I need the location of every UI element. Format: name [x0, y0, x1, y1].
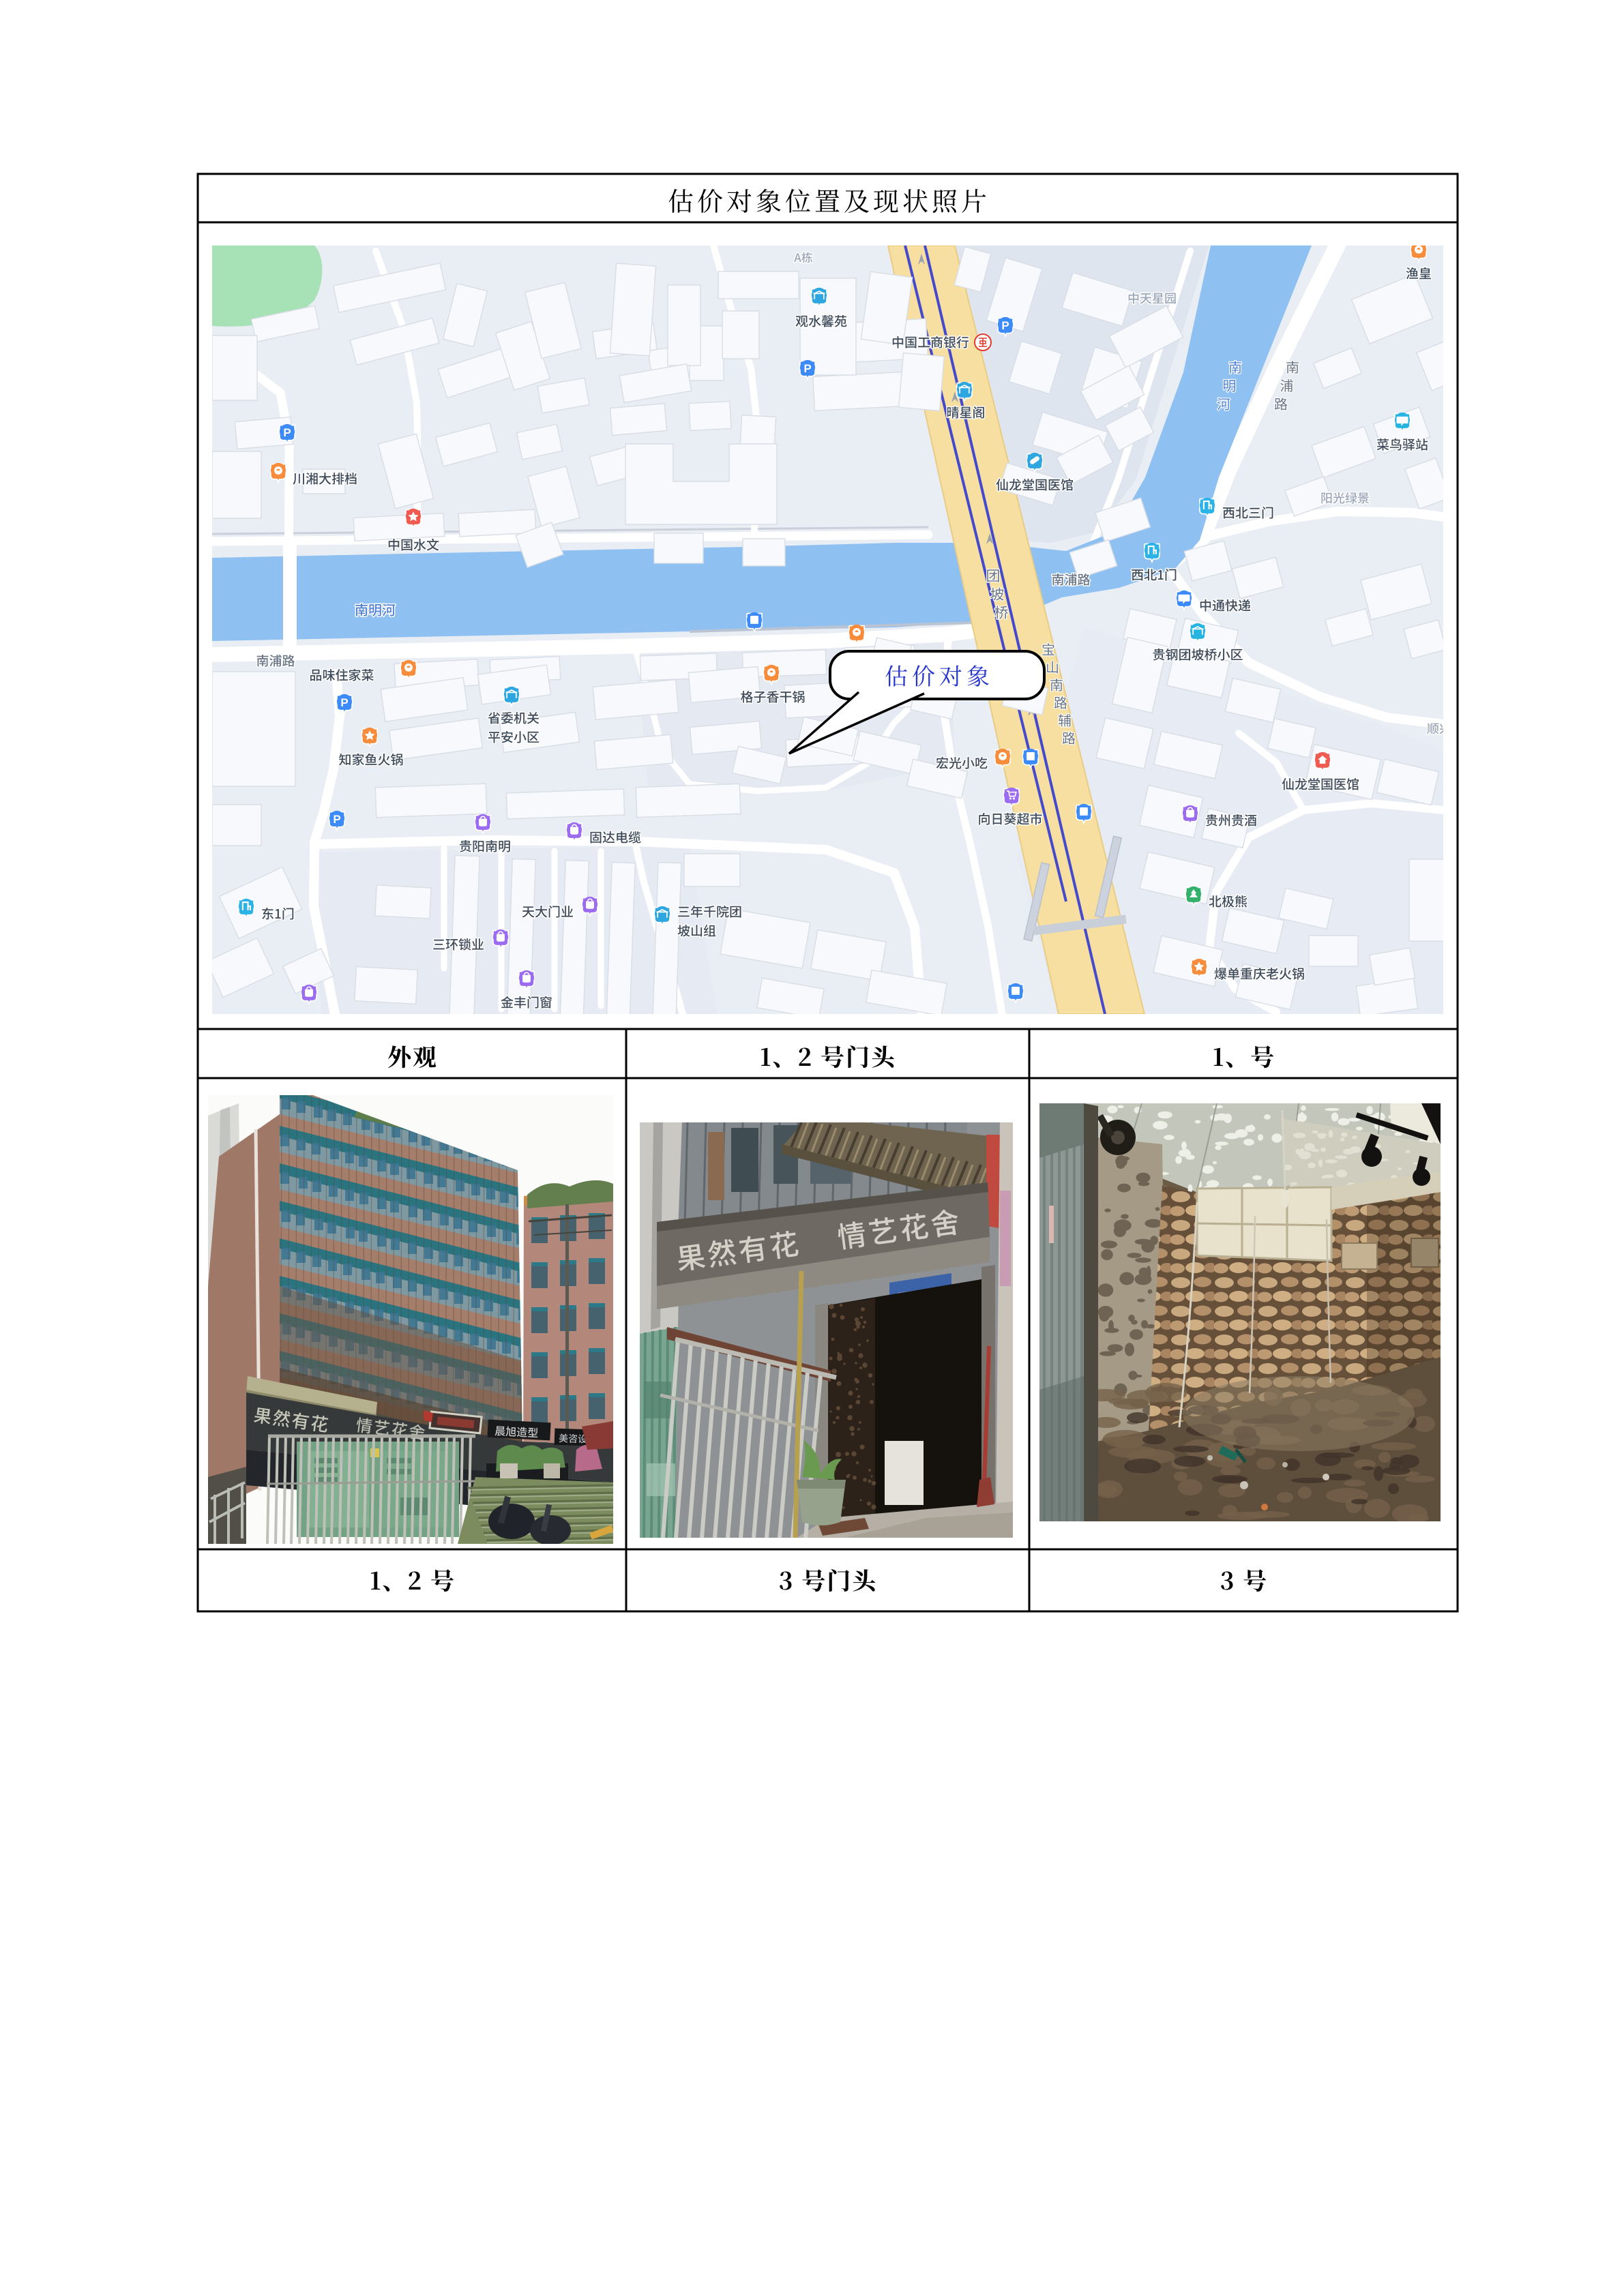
- svg-text:P: P: [283, 426, 291, 439]
- svg-text:P: P: [333, 813, 340, 826]
- svg-text:P: P: [803, 362, 811, 375]
- svg-text:P: P: [340, 696, 348, 709]
- svg-text:P: P: [1001, 319, 1009, 332]
